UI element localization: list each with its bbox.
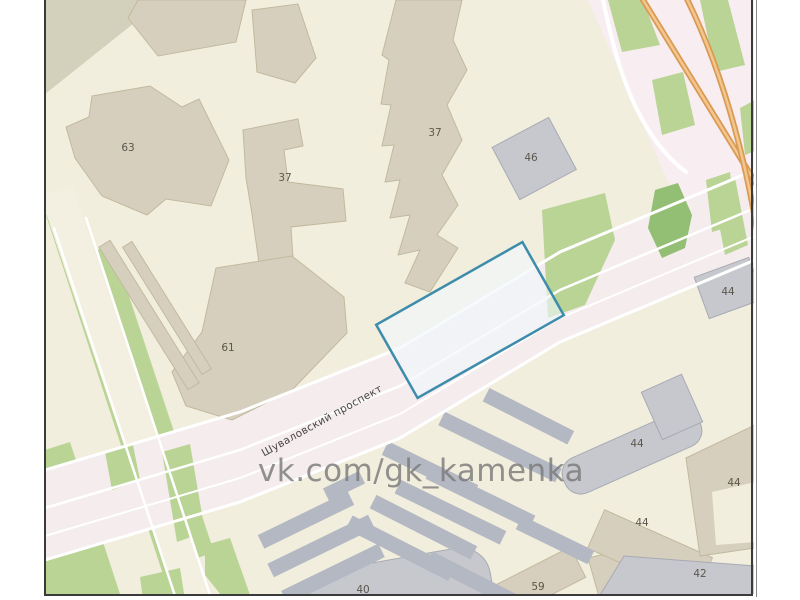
building-label-40: 40 <box>356 584 369 596</box>
building-label-63: 63 <box>121 142 134 154</box>
watermark: vk.com/gk_kamenka <box>258 453 584 489</box>
map-page: 63 37 37 46 61 44 44 44 44 40 59 42 Шува… <box>0 0 800 600</box>
building-label-44c: 44 <box>727 477 740 489</box>
courtyard <box>712 482 755 545</box>
building-label-46: 46 <box>524 152 537 164</box>
building-label-37a: 37 <box>278 172 291 184</box>
building-label-44a: 44 <box>721 286 734 298</box>
map-canvas <box>0 0 800 600</box>
building-label-42: 42 <box>693 568 706 580</box>
building-label-44d: 44 <box>635 517 648 529</box>
building-label-61: 61 <box>221 342 234 354</box>
building-label-37b: 37 <box>428 127 441 139</box>
building-label-44b: 44 <box>630 438 643 450</box>
building-label-59: 59 <box>531 581 544 593</box>
